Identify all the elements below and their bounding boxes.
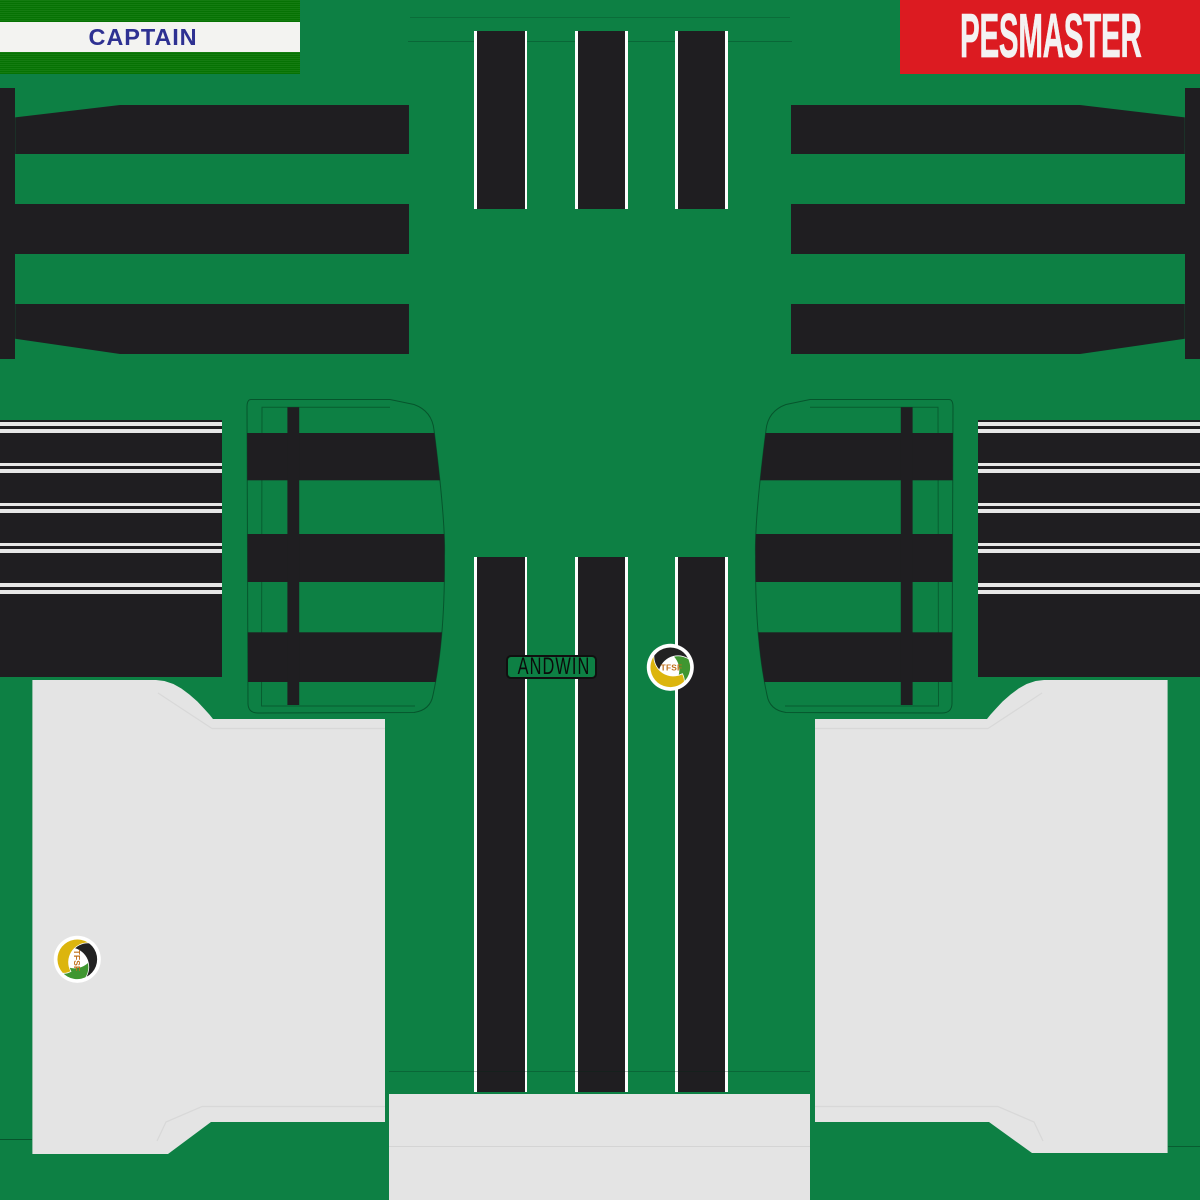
svg-text:TFSF: TFSF (660, 663, 682, 673)
